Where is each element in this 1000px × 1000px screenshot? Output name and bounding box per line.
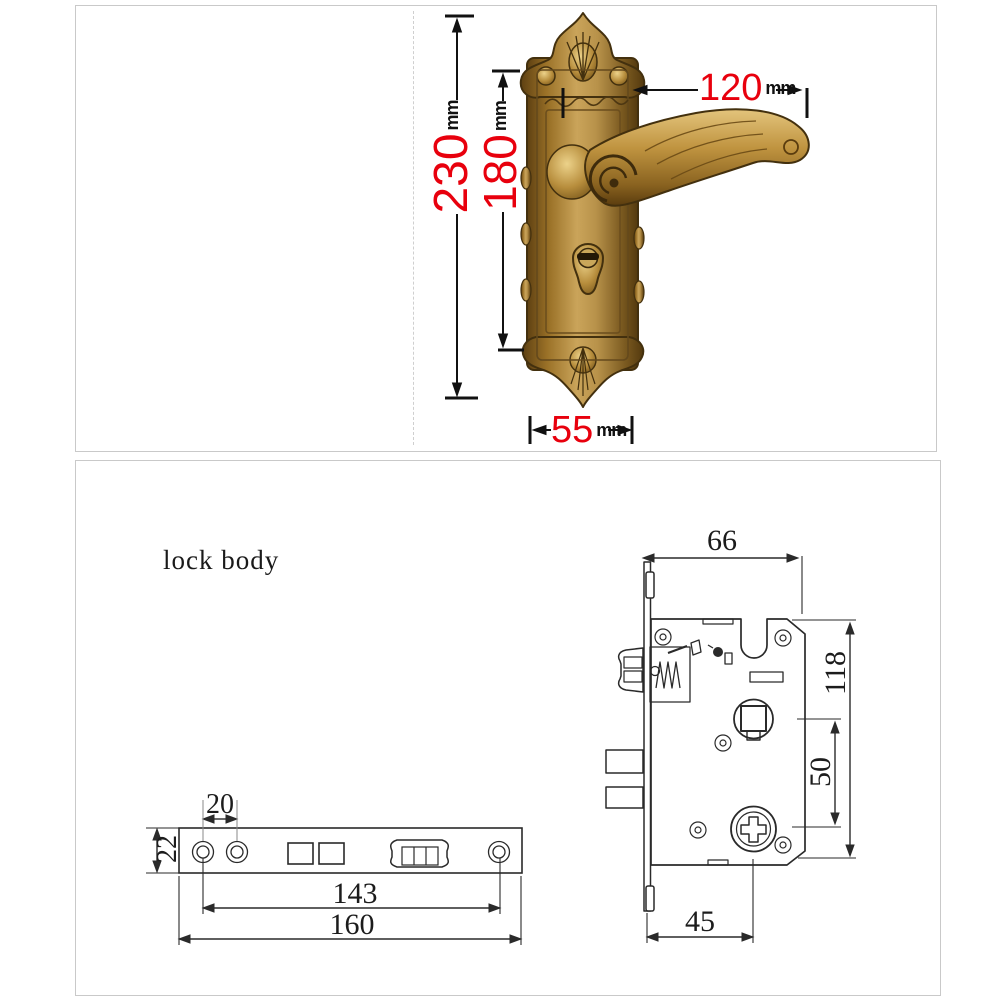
dim-plate-width-label: 55 mm [551,411,626,449]
dim-total-height-unit: mm [443,100,461,130]
dim-faceplate-length-label: 160 [330,910,375,940]
dim-plate-width-value: 55 [551,411,593,449]
product-dimension-diagram: 230 mm 180 mm 120 mm 55 mm lock body 66 … [0,0,1000,1000]
dashed-centerline [413,11,414,445]
dim-plate-width-unit: mm [596,421,626,439]
dim-handle-length-value: 120 [699,69,762,107]
handle-photo-panel [75,5,937,452]
dim-plate-height-value: 180 [477,134,523,211]
dim-case-width-label: 66 [707,526,737,556]
dim-total-height-label: 230 mm [428,100,476,213]
dim-total-height-value: 230 [428,133,476,213]
dim-backset-label: 45 [685,907,715,937]
dim-faceplate-width-label: 22 [154,835,182,863]
lock-body-title: lock body [163,545,279,576]
dim-screw-span-label: 143 [333,879,378,909]
dim-screw-gap-label: 20 [206,791,234,819]
dim-case-height-label: 118 [821,651,851,695]
lock-body-panel [75,460,941,996]
dim-plate-height-label: 180 mm [477,101,523,211]
dim-spindle-to-cylinder-label: 50 [806,757,836,787]
dim-handle-length-unit: mm [765,79,795,97]
dim-handle-length-label: 120 mm [699,69,795,107]
dim-plate-height-unit: mm [491,101,509,131]
